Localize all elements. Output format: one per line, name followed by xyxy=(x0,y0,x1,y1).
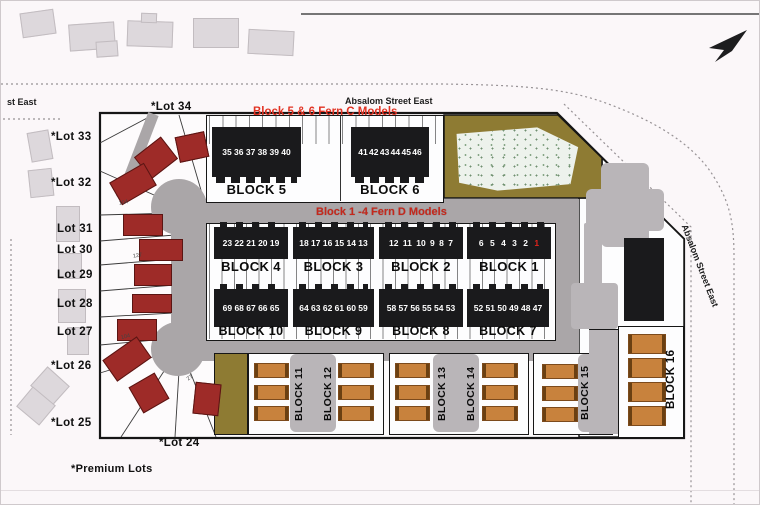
block2-units: 12 11 10 9 8 7 xyxy=(389,238,453,248)
street-label-left-partial: st East xyxy=(7,97,37,107)
block14-label: BLOCK 14 xyxy=(465,359,479,429)
red-house xyxy=(132,294,172,313)
block9-building: 64 63 62 61 60 59 xyxy=(293,289,374,327)
block1-label: BLOCK 1 xyxy=(467,259,551,274)
block6-units: 41 42 43 44 45 46 xyxy=(358,147,422,157)
block9-units: 64 63 62 61 60 59 xyxy=(299,303,368,313)
lot-label-33: *Lot 33 xyxy=(51,131,91,143)
block7-units: 52 51 50 49 48 47 xyxy=(474,303,543,313)
townhouse-unit xyxy=(338,406,374,421)
cul-de-sac-bottom xyxy=(151,322,205,376)
block5-building: 35 36 37 38 39 40 xyxy=(212,127,301,177)
townhouse-unit xyxy=(254,363,289,378)
block8-units: 58 57 56 55 54 53 xyxy=(387,303,456,313)
lot-label-32: *Lot 32 xyxy=(51,177,91,189)
townhouse-unit xyxy=(482,363,518,378)
lot-label-29: Lot 29 xyxy=(57,269,93,281)
block4-label: BLOCK 4 xyxy=(214,259,288,274)
north-arrow-icon xyxy=(709,30,747,62)
block2-building: 12 11 10 9 8 7 xyxy=(379,227,463,259)
block4-building: 23 22 21 20 19 xyxy=(214,227,288,259)
building-teeth xyxy=(220,222,282,227)
townhouse-unit xyxy=(395,385,430,400)
townhouse-unit xyxy=(628,334,666,354)
existing-house xyxy=(127,20,174,48)
street-label-top: Absalom Street East xyxy=(345,96,433,106)
block1-building: 6 5 4 3 2 1 xyxy=(467,227,551,259)
annotation-fern-c: Block 5 & 6 Fern C Models xyxy=(253,106,397,118)
red-house xyxy=(139,239,183,261)
lot-label-28: Lot 28 xyxy=(57,298,93,310)
block6-label: BLOCK 6 xyxy=(351,182,429,197)
townhouse-unit xyxy=(542,407,578,422)
townhouse-unit xyxy=(628,406,666,426)
block3-label: BLOCK 3 xyxy=(293,259,374,274)
scan-artifact-line xyxy=(301,13,760,15)
future-pad xyxy=(584,223,602,327)
block9-label: BLOCK 9 xyxy=(293,324,374,338)
townhouse-unit xyxy=(395,363,430,378)
townhouse-unit xyxy=(628,382,666,402)
block13-building xyxy=(395,363,430,421)
block5-label: BLOCK 5 xyxy=(212,182,301,197)
block6-building: 41 42 43 44 45 46 xyxy=(351,127,429,177)
block1-units: 6 5 4 3 2 1 xyxy=(479,238,539,248)
lot-label-34: *Lot 34 xyxy=(151,101,191,113)
block12-building xyxy=(338,363,374,421)
townhouse-unit xyxy=(254,406,289,421)
townhouse-unit xyxy=(338,385,374,400)
road-right xyxy=(556,199,579,361)
block8-building: 58 57 56 55 54 53 xyxy=(379,289,463,327)
block8-label: BLOCK 8 xyxy=(379,324,463,338)
lot-label-25: *Lot 25 xyxy=(51,417,91,429)
building-teeth xyxy=(385,284,457,289)
block12-label: BLOCK 12 xyxy=(322,359,336,429)
townhouse-unit xyxy=(628,358,666,378)
existing-house xyxy=(193,18,239,48)
block2-label: BLOCK 2 xyxy=(379,259,463,274)
red-house xyxy=(134,264,172,286)
building-teeth xyxy=(385,222,457,227)
building-teeth xyxy=(473,284,543,289)
block16-building xyxy=(628,334,666,426)
block14-building xyxy=(482,363,518,421)
block5-units: 35 36 37 38 39 40 xyxy=(222,147,291,157)
lot-label-31: Lot 31 xyxy=(57,223,93,235)
scan-edge-line xyxy=(1,490,760,491)
townhouse-unit xyxy=(254,385,289,400)
block10-building: 69 68 67 66 65 xyxy=(214,289,288,327)
townhouse-unit xyxy=(338,363,374,378)
existing-house xyxy=(95,40,118,57)
townhouse-unit xyxy=(482,406,518,421)
lot-label-27: Lot 27 xyxy=(57,326,93,338)
parcel-divider xyxy=(340,116,341,201)
block15-label: BLOCK 15 xyxy=(579,357,593,429)
building-teeth xyxy=(473,222,545,227)
red-house xyxy=(123,214,163,236)
block16-label: BLOCK 16 xyxy=(665,343,681,415)
red-house xyxy=(192,382,221,417)
block7-label: BLOCK 7 xyxy=(467,324,549,338)
building-teeth xyxy=(299,284,368,289)
block1-unit-red: 1 xyxy=(534,238,539,248)
lot-label-30: Lot 30 xyxy=(57,244,93,256)
building-teeth xyxy=(220,284,282,289)
townhouse-unit xyxy=(542,364,578,379)
building-teeth xyxy=(299,222,368,227)
block11-label: BLOCK 11 xyxy=(293,359,307,429)
lot-label-24: *Lot 24 xyxy=(159,437,199,449)
townhouse-unit xyxy=(542,386,578,401)
annotation-fern-d: Block 1 -4 Fern D Models xyxy=(316,206,447,218)
lot-label-26: *Lot 26 xyxy=(51,360,91,372)
premium-lots-note: *Premium Lots xyxy=(71,463,153,475)
existing-house xyxy=(141,13,157,24)
block3-building: 18 17 16 15 14 13 xyxy=(293,227,374,259)
east-black-building xyxy=(624,238,664,321)
existing-house xyxy=(247,29,294,56)
block7-building: 52 51 50 49 48 47 xyxy=(467,289,549,327)
block11-building xyxy=(254,363,289,421)
townhouse-unit xyxy=(395,406,430,421)
block3-units: 18 17 16 15 14 13 xyxy=(299,238,368,248)
block13-label: BLOCK 13 xyxy=(436,359,450,429)
townhouse-unit xyxy=(482,385,518,400)
block4-units: 23 22 21 20 19 xyxy=(223,238,280,248)
block10-label: BLOCK 10 xyxy=(212,324,290,338)
block15-building xyxy=(542,364,578,422)
block10-units: 69 68 67 66 65 xyxy=(223,303,280,313)
site-plan: 35 36 37 38 39 40 BLOCK 5 41 42 43 44 45… xyxy=(0,0,760,505)
existing-house xyxy=(19,9,56,38)
